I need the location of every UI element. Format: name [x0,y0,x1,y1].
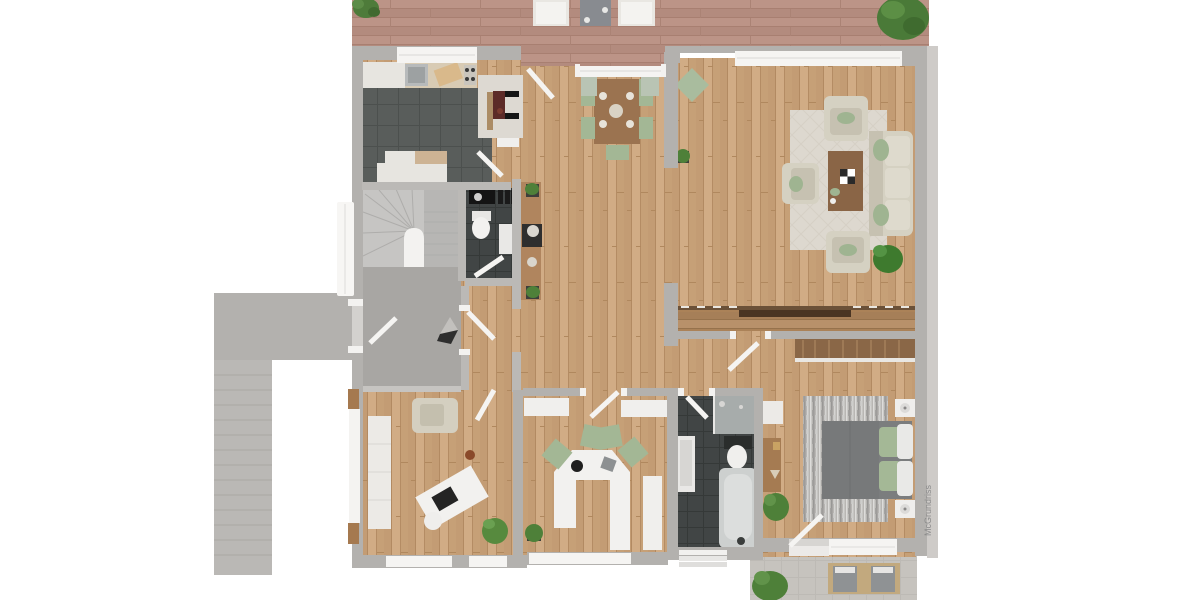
svg-text:McGrundriss: McGrundriss [923,484,933,536]
